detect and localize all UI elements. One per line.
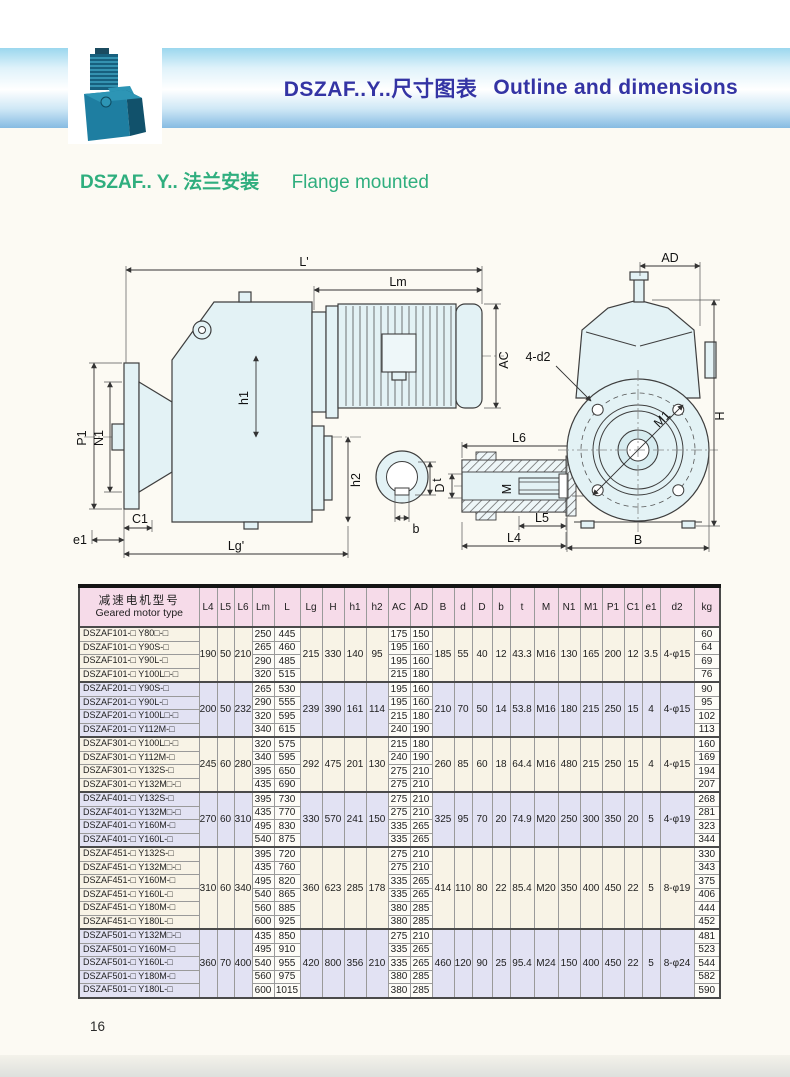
dimension-cell: 485 — [274, 655, 300, 669]
motor-type-cell: DSZAF451-□ Y180M-□ — [79, 902, 199, 916]
dimension-cell: 770 — [274, 806, 300, 820]
dimension-cell: 64 — [694, 641, 720, 655]
dimension-cell: 50 — [472, 682, 492, 737]
dimension-cell: 340 — [234, 847, 252, 929]
dimension-cell: 160 — [410, 641, 432, 655]
dim-label-ac: AC — [497, 351, 511, 368]
dimension-cell: 275 — [388, 778, 410, 792]
dimension-table-wrap: 减速电机型号 Geared motor type L4L5L6LmLLgHh1h… — [78, 584, 721, 999]
subtitle-en: Flange mounted — [292, 172, 429, 193]
dimension-cell: 265 — [410, 888, 432, 902]
dimension-cell: 250 — [602, 682, 624, 737]
motor-type-cell: DSZAF501-□ Y180L-□ — [79, 984, 199, 998]
dimension-cell: 340 — [252, 723, 274, 737]
dimension-cell: 495 — [252, 820, 274, 834]
column-header: Lg — [300, 586, 322, 627]
dimension-cell: 5 — [642, 929, 660, 998]
dimension-cell: 356 — [344, 929, 366, 998]
dimension-cell: 64.4 — [510, 737, 534, 792]
dimension-cell: 195 — [388, 696, 410, 710]
dimension-cell: 460 — [432, 929, 454, 998]
dimension-cell: 865 — [274, 888, 300, 902]
motor-type-cell: DSZAF401-□ Y160L-□ — [79, 833, 199, 847]
dimension-cell: 210 — [410, 765, 432, 779]
dimension-cell: 215 — [300, 627, 322, 682]
dimension-cell: M16 — [534, 682, 558, 737]
dimension-table-body: DSZAF101-□ Y80□-□19050210250445215330140… — [79, 627, 720, 998]
column-header: L5 — [217, 586, 234, 627]
dimension-cell: 285 — [410, 915, 432, 929]
dim-label-l6: L6 — [512, 431, 526, 445]
dimension-cell: 495 — [252, 875, 274, 889]
dimension-cell: 523 — [694, 943, 720, 957]
dimension-cell: 445 — [274, 627, 300, 641]
dimension-cell: 481 — [694, 929, 720, 943]
dimension-cell: 240 — [388, 723, 410, 737]
footer-strip — [0, 1055, 790, 1077]
dimension-cell: 875 — [274, 833, 300, 847]
dimension-cell: 600 — [252, 915, 274, 929]
dimension-cell: 590 — [694, 984, 720, 998]
dimension-cell: 885 — [274, 902, 300, 916]
dimension-cell: 406 — [694, 888, 720, 902]
column-header: H — [322, 586, 344, 627]
dimension-cell: 395 — [252, 765, 274, 779]
dimension-cell: 265 — [410, 820, 432, 834]
dimension-cell: 185 — [432, 627, 454, 682]
dimension-cell: 4-φ15 — [660, 737, 694, 792]
dimension-cell: 360 — [300, 847, 322, 929]
dimension-cell: 360 — [199, 929, 217, 998]
column-header: t — [510, 586, 534, 627]
dimension-cell: 169 — [694, 751, 720, 765]
column-header: C1 — [624, 586, 642, 627]
dimension-cell: 285 — [344, 847, 366, 929]
dim-label-h1: h1 — [237, 391, 251, 405]
section-subtitle: DSZAF.. Y.. 法兰安装 Flange mounted — [80, 167, 429, 194]
dimension-cell: 435 — [252, 861, 274, 875]
dimension-cell: 400 — [580, 847, 602, 929]
dimension-cell: 460 — [274, 641, 300, 655]
dimension-cell: 260 — [432, 737, 454, 792]
motor-type-cell: DSZAF201-□ Y90L-□ — [79, 696, 199, 710]
dimension-cell: 265 — [410, 957, 432, 971]
dimension-cell: 281 — [694, 806, 720, 820]
motor-type-cell: DSZAF301-□ Y132S-□ — [79, 765, 199, 779]
dim-label-B: B — [634, 533, 642, 547]
column-header: L6 — [234, 586, 252, 627]
dimension-cell: 285 — [410, 902, 432, 916]
motor-type-cell: DSZAF401-□ Y132S-□ — [79, 792, 199, 806]
dimension-cell: 241 — [344, 792, 366, 847]
dimension-cell: 180 — [410, 710, 432, 724]
dimension-cell: 180 — [410, 737, 432, 751]
dimension-cell: 150 — [366, 792, 388, 847]
dimension-cell: 4-φ15 — [660, 682, 694, 737]
dimension-cell: 200 — [199, 682, 217, 737]
motor-type-cell: DSZAF451-□ Y180L-□ — [79, 915, 199, 929]
dimension-cell: 850 — [274, 929, 300, 943]
dimension-cell: 540 — [252, 833, 274, 847]
dimension-cell: 444 — [694, 902, 720, 916]
dimension-cell: 400 — [234, 929, 252, 998]
column-header: e1 — [642, 586, 660, 627]
dimension-cell: 175 — [388, 627, 410, 641]
dimension-cell: M20 — [534, 792, 558, 847]
dimension-cell: 55 — [454, 627, 472, 682]
motor-type-cell: DSZAF301-□ Y112M-□ — [79, 751, 199, 765]
dimension-cell: 8-φ24 — [660, 929, 694, 998]
dimension-cell: 95 — [454, 792, 472, 847]
dimension-cell: 102 — [694, 710, 720, 724]
dimension-cell: 215 — [388, 710, 410, 724]
table-row: DSZAF401-□ Y132S-□2706031039573033057024… — [79, 792, 720, 806]
column-header: AC — [388, 586, 410, 627]
dimension-cell: 60 — [472, 737, 492, 792]
dimension-cell: 195 — [388, 682, 410, 696]
product-photo — [68, 44, 162, 144]
dimension-cell: 265 — [252, 641, 274, 655]
dimension-table: 减速电机型号 Geared motor type L4L5L6LmLLgHh1h… — [78, 584, 721, 999]
dim-label-l4: L4 — [507, 531, 521, 545]
column-header: Lm — [252, 586, 274, 627]
dimension-cell: 4 — [642, 682, 660, 737]
dimension-cell: 820 — [274, 875, 300, 889]
column-header: M — [534, 586, 558, 627]
dimension-cell: 74.9 — [510, 792, 534, 847]
dimension-cell: 12 — [624, 627, 642, 682]
dimension-cell: 690 — [274, 778, 300, 792]
dimension-cell: 285 — [410, 984, 432, 998]
dimension-cell: 265 — [410, 943, 432, 957]
dimension-cell: 495 — [252, 943, 274, 957]
column-header: h1 — [344, 586, 366, 627]
dimension-cell: 335 — [388, 875, 410, 889]
motor-type-cell: DSZAF401-□ Y132M□-□ — [79, 806, 199, 820]
dimension-cell: M20 — [534, 847, 558, 929]
dimension-cell: 380 — [388, 902, 410, 916]
dim-label-e1: e1 — [73, 533, 87, 547]
dimension-cell: 110 — [454, 847, 472, 929]
motor-type-cell: DSZAF451-□ Y160L-□ — [79, 888, 199, 902]
dimension-cell: 215 — [388, 737, 410, 751]
table-row: DSZAF451-□ Y132S-□3106034039572036062328… — [79, 847, 720, 861]
dimension-cell: 150 — [410, 627, 432, 641]
dimension-cell: 275 — [388, 765, 410, 779]
dimension-cell: 60 — [217, 792, 234, 847]
dimension-cell: 60 — [217, 737, 234, 792]
dimension-cell: 323 — [694, 820, 720, 834]
dimension-cell: 210 — [410, 861, 432, 875]
dimension-cell: 275 — [388, 847, 410, 861]
motor-type-cell: DSZAF501-□ Y180M-□ — [79, 970, 199, 984]
dimension-cell: 250 — [558, 792, 580, 847]
dimension-cell: 165 — [580, 627, 602, 682]
dimension-cell: 265 — [252, 682, 274, 696]
dimension-cell: M16 — [534, 737, 558, 792]
dimension-cell: 325 — [432, 792, 454, 847]
dimension-cell: 310 — [234, 792, 252, 847]
dimension-cell: 120 — [454, 929, 472, 998]
dimension-cell: 730 — [274, 792, 300, 806]
dimension-cell: 215 — [388, 668, 410, 682]
dimension-cell: 180 — [558, 682, 580, 737]
dimension-cell: 95 — [366, 627, 388, 682]
dimension-cell: 515 — [274, 668, 300, 682]
dimension-cell: 4-φ19 — [660, 792, 694, 847]
dimension-cell: 292 — [300, 737, 322, 792]
dim-label-l5: L5 — [535, 511, 549, 525]
dimension-cell: 344 — [694, 833, 720, 847]
dimension-cell: 575 — [274, 737, 300, 751]
dimension-cell: 12 — [492, 627, 510, 682]
dim-label-H: H — [713, 411, 727, 420]
column-header: B — [432, 586, 454, 627]
dimension-cell: 414 — [432, 847, 454, 929]
page-title-en: Outline and dimensions — [493, 76, 738, 100]
dimension-cell: 335 — [388, 833, 410, 847]
dimension-cell: 160 — [410, 655, 432, 669]
table-row: DSZAF101-□ Y80□-□19050210250445215330140… — [79, 627, 720, 641]
dimension-cell: 70 — [217, 929, 234, 998]
dimension-cell: 160 — [410, 696, 432, 710]
dim-label-lg: Lg' — [228, 539, 244, 553]
dimension-cell: 582 — [694, 970, 720, 984]
dimension-cell: 4-φ15 — [660, 627, 694, 682]
motor-type-cell: DSZAF201-□ Y112M-□ — [79, 723, 199, 737]
dimension-cell: 350 — [558, 847, 580, 929]
dimension-cell: 250 — [602, 737, 624, 792]
dimension-cell: 544 — [694, 957, 720, 971]
motor-type-cell: DSZAF401-□ Y160M-□ — [79, 820, 199, 834]
dimension-cell: 320 — [252, 710, 274, 724]
dimension-cell: 380 — [388, 984, 410, 998]
dimension-cell: 114 — [366, 682, 388, 737]
motor-type-header-cn: 减速电机型号 — [80, 595, 199, 608]
dimension-cell: 1015 — [274, 984, 300, 998]
dim-label-ad: AD — [661, 251, 678, 265]
dimension-cell: 20 — [624, 792, 642, 847]
dimension-cell: 40 — [472, 627, 492, 682]
dimension-cell: 232 — [234, 682, 252, 737]
dimension-cell: 15 — [624, 737, 642, 792]
motor-type-cell: DSZAF451-□ Y132M□-□ — [79, 861, 199, 875]
dimension-cell: 201 — [344, 737, 366, 792]
dimension-cell: 265 — [410, 833, 432, 847]
page-title-zh: DSZAF..Y..尺寸图表 — [284, 73, 478, 103]
dimension-cell: 340 — [252, 751, 274, 765]
dimension-cell: 210 — [410, 929, 432, 943]
dimension-cell: 380 — [388, 970, 410, 984]
dimension-cell: 650 — [274, 765, 300, 779]
dimension-cell: 570 — [322, 792, 344, 847]
dimension-cell: 475 — [322, 737, 344, 792]
dimension-cell: 60 — [217, 847, 234, 929]
table-row: DSZAF201-□ Y90S-□20050232265530239390161… — [79, 682, 720, 696]
motor-type-cell: DSZAF101-□ Y100L□-□ — [79, 668, 199, 682]
dimension-cell: 140 — [344, 627, 366, 682]
dimension-cell: 43.3 — [510, 627, 534, 682]
dimension-cell: 194 — [694, 765, 720, 779]
dimension-cell: 270 — [199, 792, 217, 847]
dimension-cell: 20 — [492, 792, 510, 847]
motor-type-cell: DSZAF201-□ Y100L□-□ — [79, 710, 199, 724]
dimension-cell: 910 — [274, 943, 300, 957]
dimension-cell: 350 — [602, 792, 624, 847]
dimension-cell: 275 — [388, 929, 410, 943]
dimension-cell: 595 — [274, 751, 300, 765]
dimension-cell: 623 — [322, 847, 344, 929]
dimension-cell: 720 — [274, 847, 300, 861]
dimension-drawing: L' Lm AC h1 h2 P1 N1 e1 C1 Lg' b t — [64, 230, 734, 564]
dim-label-l-total: L' — [299, 255, 308, 269]
motor-type-cell: DSZAF101-□ Y90L-□ — [79, 655, 199, 669]
dimension-cell: 330 — [322, 627, 344, 682]
column-header: L4 — [199, 586, 217, 627]
dimension-cell: 22 — [624, 929, 642, 998]
dimension-cell: 190 — [410, 751, 432, 765]
dimension-cell: 90 — [472, 929, 492, 998]
dimension-cell: 210 — [366, 929, 388, 998]
dimension-cell: 178 — [366, 847, 388, 929]
dimension-cell: 290 — [252, 655, 274, 669]
dimension-cell: 80 — [472, 847, 492, 929]
dimension-cell: 800 — [322, 929, 344, 998]
dim-label-t: t — [430, 478, 444, 482]
outline-diagram: L' Lm AC h1 h2 P1 N1 e1 C1 Lg' b t — [64, 230, 734, 569]
dimension-cell: 4 — [642, 737, 660, 792]
dimension-cell: 275 — [388, 861, 410, 875]
dimension-cell: 560 — [252, 902, 274, 916]
motor-type-cell: DSZAF501-□ Y160M-□ — [79, 943, 199, 957]
dimension-cell: 150 — [558, 929, 580, 998]
column-header: M1 — [580, 586, 602, 627]
dimension-cell: 22 — [624, 847, 642, 929]
dimension-cell: 540 — [252, 957, 274, 971]
dimension-cell: 210 — [234, 627, 252, 682]
dimension-cell: 210 — [410, 792, 432, 806]
catalog-page: DSZAF..Y..尺寸图表 Outline and dimensions DS… — [0, 0, 790, 1077]
dimension-cell: 395 — [252, 792, 274, 806]
dimension-cell: 280 — [234, 737, 252, 792]
column-header: P1 — [602, 586, 624, 627]
dimension-cell: 70 — [454, 682, 472, 737]
dimension-cell: 400 — [580, 929, 602, 998]
dimension-cell: 975 — [274, 970, 300, 984]
dimension-cell: 15 — [624, 682, 642, 737]
dim-label-lm: Lm — [389, 275, 406, 289]
dimension-cell: 70 — [472, 792, 492, 847]
dim-label-m: M — [500, 484, 514, 494]
dimension-cell: 210 — [410, 847, 432, 861]
dimension-cell: 925 — [274, 915, 300, 929]
dimension-cell: 420 — [300, 929, 322, 998]
dimension-cell: 320 — [252, 668, 274, 682]
motor-type-cell: DSZAF201-□ Y90S-□ — [79, 682, 199, 696]
dimension-cell: 275 — [388, 806, 410, 820]
column-header: N1 — [558, 586, 580, 627]
dimension-cell: 395 — [252, 847, 274, 861]
dim-label-b: b — [413, 522, 420, 536]
column-header: h2 — [366, 586, 388, 627]
dimension-cell: 207 — [694, 778, 720, 792]
dimension-cell: 615 — [274, 723, 300, 737]
dimension-cell: 310 — [199, 847, 217, 929]
table-header-row: 减速电机型号 Geared motor type L4L5L6LmLLgHh1h… — [79, 586, 720, 627]
table-row: DSZAF301-□ Y100L□-□245602803205752924752… — [79, 737, 720, 751]
top-margin — [0, 0, 790, 48]
dim-label-p1: P1 — [75, 430, 89, 445]
dimension-cell: 180 — [410, 668, 432, 682]
dim-label-4-d2: 4-d2 — [525, 350, 550, 364]
gearmotor-photo-illustration — [68, 44, 162, 144]
dimension-cell: 540 — [252, 888, 274, 902]
dimension-cell: 530 — [274, 682, 300, 696]
dimension-cell: 195 — [388, 641, 410, 655]
dimension-cell: 190 — [199, 627, 217, 682]
dimension-cell: 480 — [558, 737, 580, 792]
column-header: b — [492, 586, 510, 627]
dimension-cell: 50 — [217, 682, 234, 737]
dimension-cell: 190 — [410, 723, 432, 737]
dimension-cell: 14 — [492, 682, 510, 737]
motor-type-cell: DSZAF101-□ Y90S-□ — [79, 641, 199, 655]
dimension-cell: 22 — [492, 847, 510, 929]
dimension-cell: 435 — [252, 929, 274, 943]
dimension-cell: 600 — [252, 984, 274, 998]
dimension-cell: M24 — [534, 929, 558, 998]
column-header: AD — [410, 586, 432, 627]
dimension-cell: 375 — [694, 875, 720, 889]
motor-type-header: 减速电机型号 Geared motor type — [79, 586, 199, 627]
column-header: d2 — [660, 586, 694, 627]
dimension-cell: 130 — [366, 737, 388, 792]
dimension-cell: 3.5 — [642, 627, 660, 682]
dimension-cell: 335 — [388, 943, 410, 957]
dimension-cell: 53.8 — [510, 682, 534, 737]
table-row: DSZAF501-□ Y132M□-□360704004358504208003… — [79, 929, 720, 943]
dimension-cell: 452 — [694, 915, 720, 929]
dimension-cell: 8-φ19 — [660, 847, 694, 929]
dimension-cell: 555 — [274, 696, 300, 710]
dimension-cell: 5 — [642, 847, 660, 929]
dimension-cell: 161 — [344, 682, 366, 737]
dimension-cell: 380 — [388, 915, 410, 929]
dimension-cell: 95 — [694, 696, 720, 710]
dimension-cell: 195 — [388, 655, 410, 669]
dimension-cell: 320 — [252, 737, 274, 751]
motor-type-cell: DSZAF501-□ Y132M□-□ — [79, 929, 199, 943]
dim-label-n1: N1 — [92, 430, 106, 446]
dimension-cell: 60 — [694, 627, 720, 641]
dimension-cell: 245 — [199, 737, 217, 792]
dim-label-D: D — [433, 483, 447, 492]
dimension-cell: 265 — [410, 875, 432, 889]
dimension-cell: M16 — [534, 627, 558, 682]
page-number: 16 — [90, 1019, 105, 1034]
subtitle-zh: DSZAF.. Y.. 法兰安装 — [80, 172, 259, 193]
dimension-cell: 76 — [694, 668, 720, 682]
dimension-cell: 560 — [252, 970, 274, 984]
dimension-cell: 50 — [217, 627, 234, 682]
column-header: L — [274, 586, 300, 627]
dimension-cell: 275 — [388, 792, 410, 806]
dim-label-h2: h2 — [349, 473, 363, 487]
dimension-cell: 160 — [410, 682, 432, 696]
motor-type-cell: DSZAF301-□ Y100L□-□ — [79, 737, 199, 751]
column-header: d — [454, 586, 472, 627]
motor-type-cell: DSZAF451-□ Y160M-□ — [79, 875, 199, 889]
